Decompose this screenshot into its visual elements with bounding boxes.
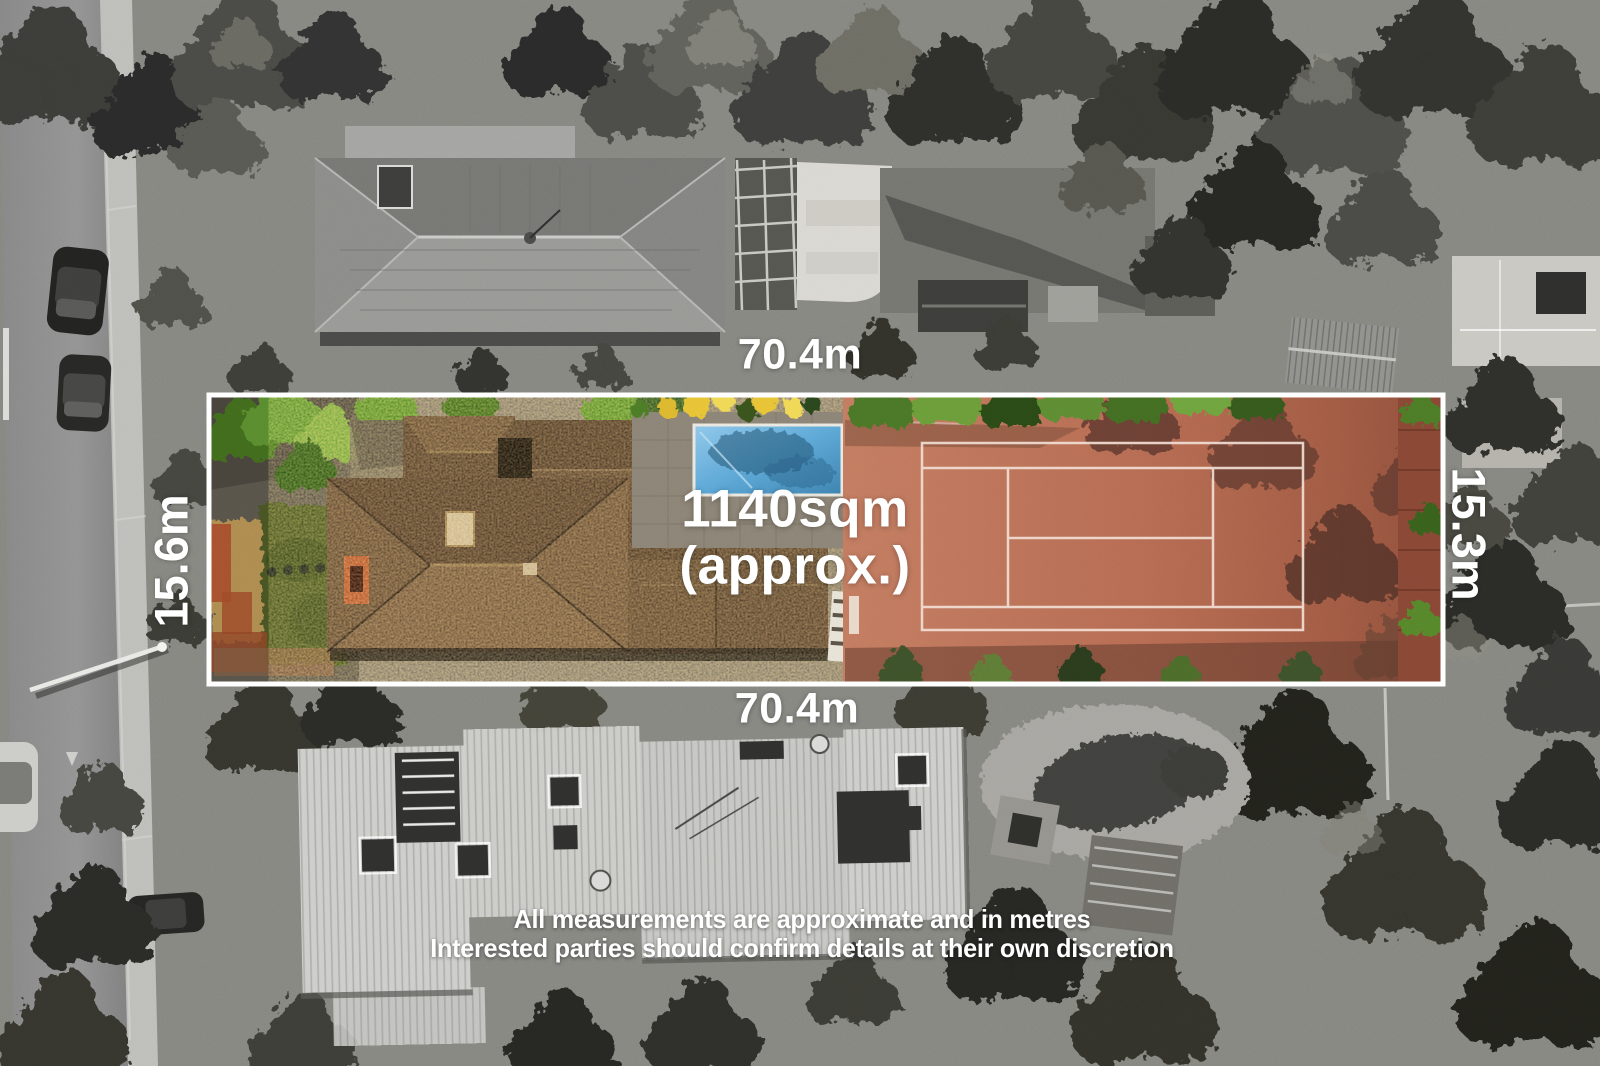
aerial-property-photo: 70.4m 70.4m 15.6m 15.3m 1140sqm (approx.… [0, 0, 1600, 1066]
disclaimer-line2: Interested parties should confirm detail… [430, 934, 1173, 963]
disclaimer-line1: All measurements are approximate and in … [430, 905, 1173, 934]
measurement-bottom: 70.4m [735, 685, 859, 734]
area-label: 1140sqm (approx.) [679, 481, 910, 594]
measurement-right: 15.3m [1442, 467, 1497, 600]
area-label-line1: 1140sqm [679, 481, 910, 538]
measurement-left: 15.6m [144, 494, 199, 627]
disclaimer: All measurements are approximate and in … [430, 905, 1173, 963]
area-label-line2: (approx.) [679, 538, 910, 595]
measurement-top: 70.4m [738, 331, 862, 380]
